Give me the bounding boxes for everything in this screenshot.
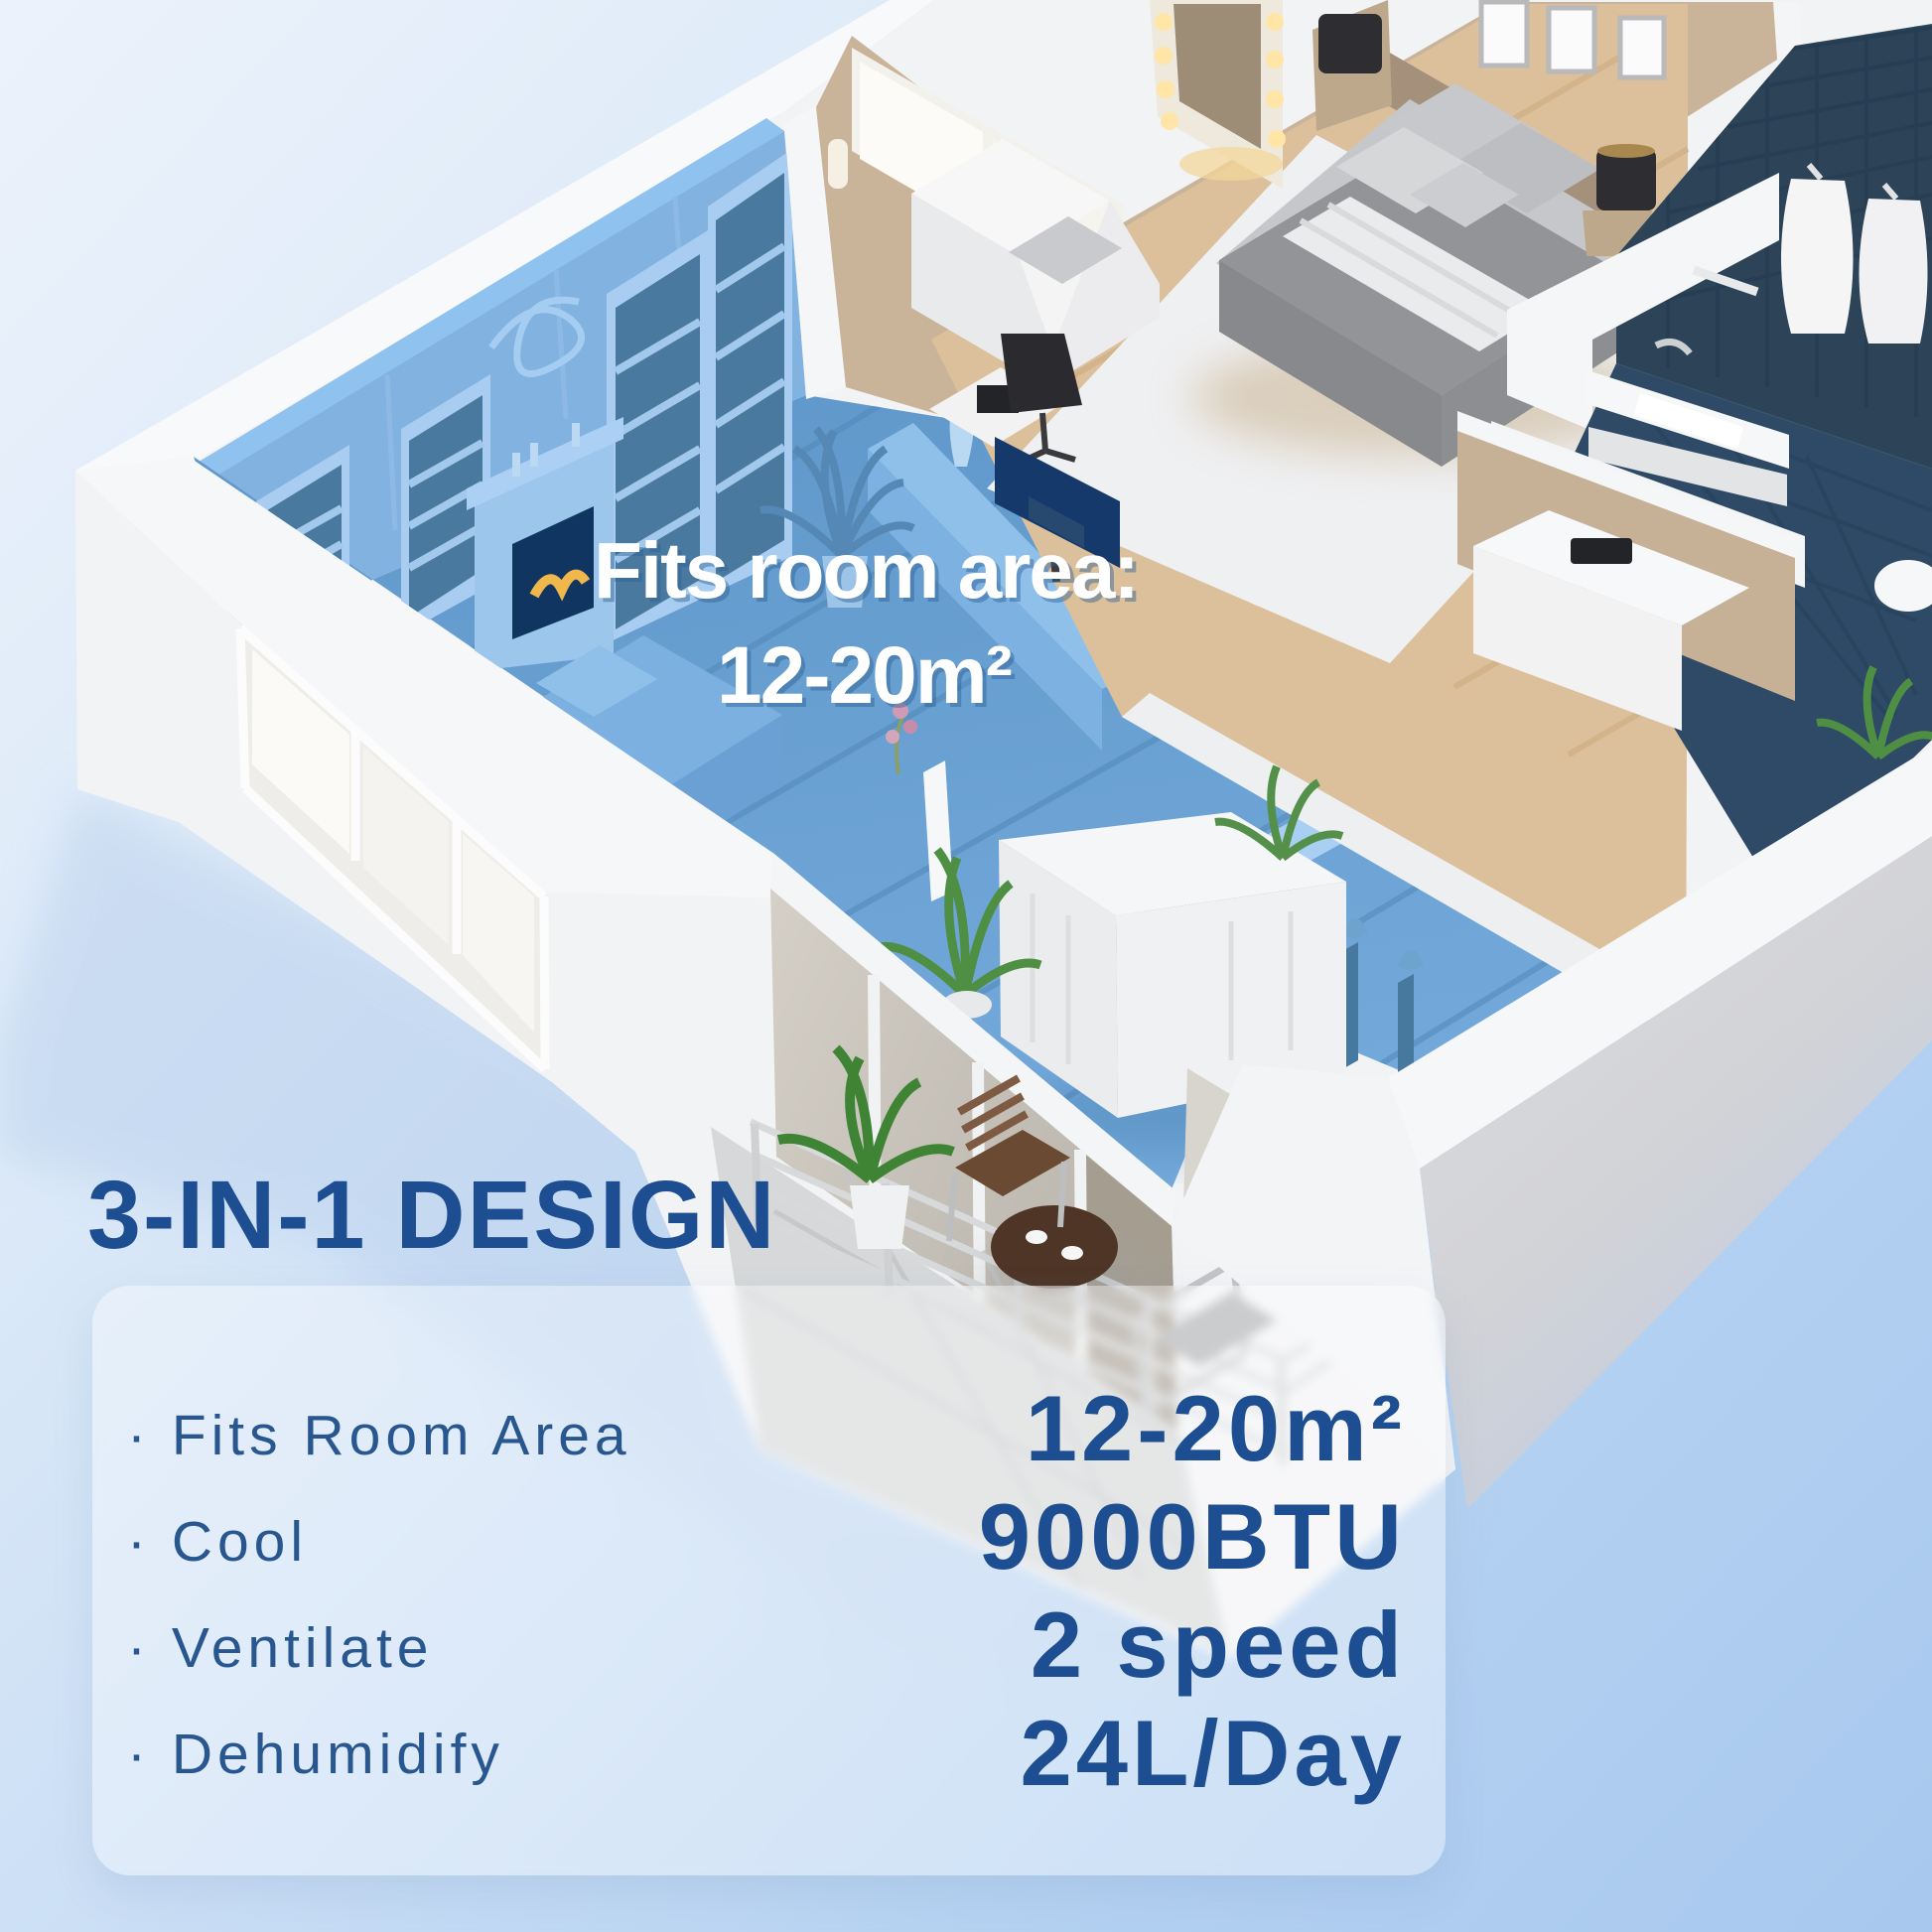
svg-text:Fits room area:: Fits room area:	[594, 526, 1138, 615]
svg-text:12-20m²: 12-20m²	[717, 630, 1012, 721]
